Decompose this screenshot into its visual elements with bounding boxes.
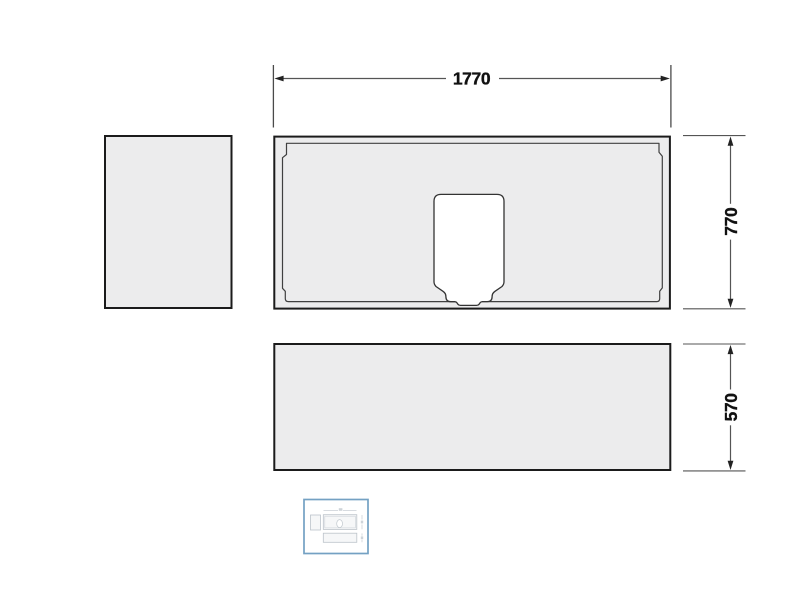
svg-text:770: 770	[721, 207, 741, 236]
svg-text:1770: 1770	[453, 69, 491, 89]
svg-text:570: 570	[721, 393, 741, 422]
